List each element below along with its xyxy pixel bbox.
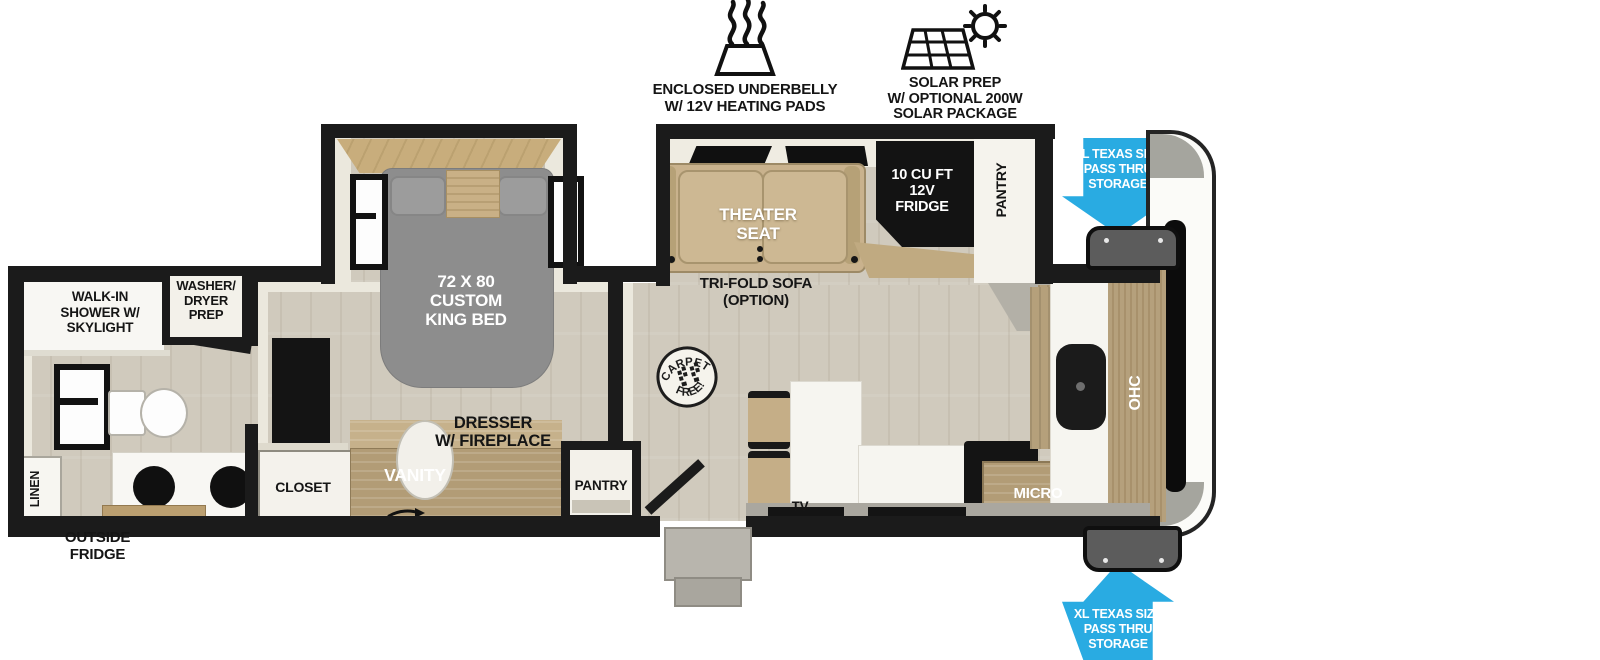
exterior-wall xyxy=(1035,124,1053,284)
solar-label: SOLAR PREP W/ OPTIONAL 200W SOLAR PACKAG… xyxy=(843,76,1067,123)
floorplan-canvas: ENCLOSED UNDERBELLY W/ 12V HEATING PADS … xyxy=(0,0,1600,660)
closet-label: CLOSET xyxy=(258,480,348,496)
entry-steps xyxy=(664,527,752,581)
kitchen-cabinet-strip xyxy=(1030,287,1052,449)
entry-step-lower xyxy=(674,577,742,607)
rivet xyxy=(1158,238,1163,243)
kitchen-island xyxy=(790,381,862,511)
shower-label: WALK-IN SHOWER W/ SKYLIGHT xyxy=(24,289,176,336)
kitchen-pantry-label: PANTRY xyxy=(994,145,1014,235)
sink-drain xyxy=(1076,382,1085,391)
cupholder xyxy=(851,256,858,263)
rivet xyxy=(1104,238,1109,243)
bathroom-window-bar xyxy=(54,398,98,405)
wall-face xyxy=(333,137,351,283)
fridge-label: 10 CU FT 12V FRIDGE xyxy=(878,167,966,215)
rivet xyxy=(1159,558,1164,563)
slide-wall xyxy=(321,124,335,284)
linen-label: LINEN xyxy=(28,459,44,519)
bathroom-window xyxy=(54,364,110,450)
exterior-wall xyxy=(563,266,670,282)
rivet xyxy=(1103,558,1108,563)
heating-pad-icon xyxy=(699,0,791,80)
pass-thru-storage-door xyxy=(1083,526,1182,572)
tv-label: TV xyxy=(780,499,820,514)
cupholder xyxy=(757,246,763,252)
bedroom-slide-window-bar xyxy=(350,213,376,219)
washer-dryer-label: WASHER/ DRYER PREP xyxy=(164,279,248,323)
wall-face xyxy=(623,283,633,443)
bedroom-pantry-label: PANTRY xyxy=(563,478,639,493)
sink-bowl xyxy=(133,466,175,508)
wall-face xyxy=(258,282,268,450)
bedroom-tv xyxy=(272,338,330,450)
cupholder xyxy=(757,256,763,262)
exterior-wall xyxy=(8,266,24,537)
slide-wall xyxy=(563,124,577,284)
pass-thru-storage-door xyxy=(1086,226,1180,270)
trifold-sofa-label: TRI-FOLD SOFA (OPTION) xyxy=(667,276,845,309)
theater-seat-label: THEATER SEAT xyxy=(697,206,819,243)
underbelly-label: ENCLOSED UNDERBELLY W/ 12V HEATING PADS xyxy=(614,81,876,115)
interior-wall xyxy=(245,424,258,518)
vanity-label: VANITY xyxy=(355,466,475,486)
slide-wall xyxy=(656,124,670,286)
outside-fridge-label: OUTSIDE FRIDGE xyxy=(30,530,165,563)
bar-stool xyxy=(748,391,790,449)
micro-label: MICRO xyxy=(984,486,1092,503)
shower-ledge xyxy=(22,350,170,356)
bedroom-pantry-floor xyxy=(572,500,630,513)
bed-blanket xyxy=(446,170,500,218)
slide-wall xyxy=(656,124,1055,139)
pillow xyxy=(498,176,548,216)
bedroom-slide-window xyxy=(350,174,388,270)
ohc-label: OHC xyxy=(1127,348,1147,438)
solar-panel-icon xyxy=(901,4,1011,78)
dresser-label: DRESSER W/ FIREPLACE xyxy=(418,414,568,450)
interior-wall xyxy=(608,282,623,444)
king-bed-label: 72 X 80 CUSTOM KING BED xyxy=(392,272,540,329)
toilet-bowl xyxy=(140,388,188,438)
slide-wall xyxy=(321,124,577,138)
storage-callout-bottom: XL TEXAS SIZE PASS THRU STORAGE xyxy=(1062,563,1174,660)
pillow xyxy=(390,176,446,216)
